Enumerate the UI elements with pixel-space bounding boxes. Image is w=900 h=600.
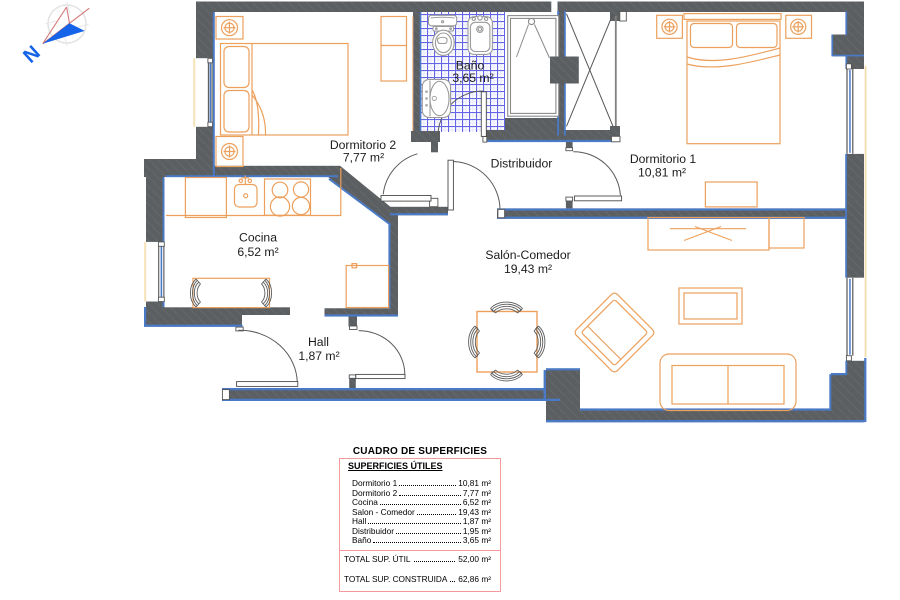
svg-text:19,43 m²: 19,43 m² bbox=[504, 262, 552, 276]
svg-text:Distribuidor: Distribuidor bbox=[491, 157, 553, 171]
svg-text:1,87 m²: 1,87 m² bbox=[298, 349, 339, 363]
svg-text:Hall: Hall bbox=[308, 335, 329, 349]
svg-text:6,52 m²: 6,52 m² bbox=[237, 245, 278, 259]
svg-text:Dormitorio 1: Dormitorio 1 bbox=[630, 152, 697, 166]
svg-text:10,81 m²: 10,81 m² bbox=[638, 166, 686, 180]
svg-text:N: N bbox=[19, 42, 44, 68]
svg-text:Salón-Comedor: Salón-Comedor bbox=[485, 248, 570, 262]
svg-text:Cocina: Cocina bbox=[239, 231, 277, 245]
svg-text:7,77 m²: 7,77 m² bbox=[343, 151, 384, 165]
svg-text:3,65 m²: 3,65 m² bbox=[452, 71, 493, 85]
